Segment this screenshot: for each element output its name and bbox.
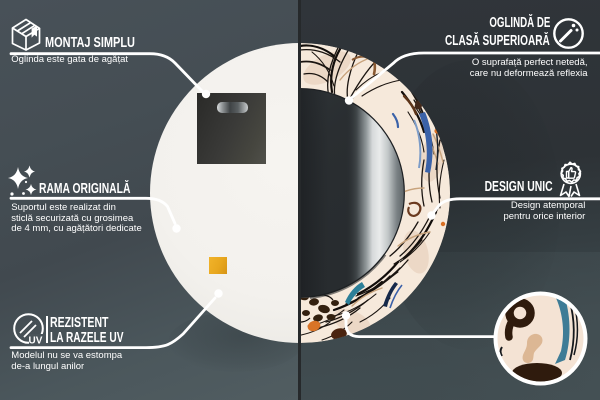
svg-text:UV: UV <box>29 336 43 347</box>
